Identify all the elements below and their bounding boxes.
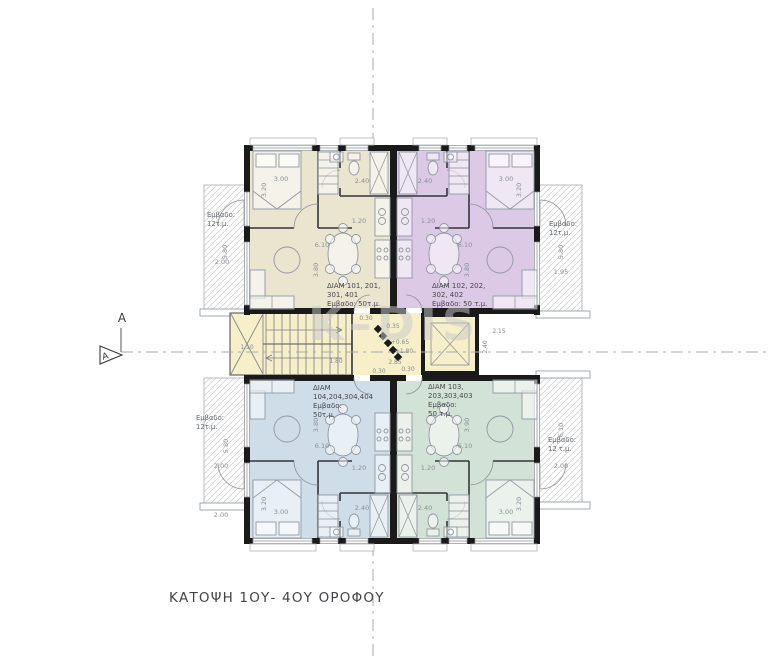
dim-1.95: 1.95 (554, 268, 568, 276)
railing-plate (200, 503, 247, 510)
dim-6.10: 6.10 (458, 241, 472, 249)
party-wall-top (390, 151, 397, 308)
dim-3.20: 3.20 (515, 183, 523, 197)
apt-102-label: 302, 402 (432, 291, 463, 299)
dim-3.00: 3.00 (274, 508, 288, 516)
dim-2.40: 2.40 (355, 177, 369, 185)
apt-103-label: ΔΙΑΜ 103, (428, 383, 464, 391)
drawing-title: ΚΑΤΟΨΗ 1ΟΥ- 4ΟΥ ΟΡΟΦΟΥ (169, 590, 385, 606)
dim-2.00: 2.00 (214, 462, 228, 470)
dim-3.20: 3.20 (515, 497, 523, 511)
dim-0.35: 0.35 (386, 323, 400, 330)
apt-102-area: Εμβαδο: 50 τ.μ. (432, 300, 487, 308)
dim-5.80: 5.80 (222, 439, 230, 453)
balcony-tl-area: Εμβαδο: (207, 211, 235, 219)
dim-6.10: 6.10 (458, 442, 472, 450)
dim-2.85: 2.85 (388, 359, 402, 366)
balcony-tr-area: 12τ.μ. (549, 229, 570, 237)
section-letter-top: A (118, 311, 127, 325)
level-+0.65: +0.65 (391, 339, 410, 346)
balcony-tr-area: Εμβαδο: (549, 220, 577, 228)
balcony-br-area: Εμβαδο: (548, 436, 576, 444)
apt-101-label: 301, 401 (327, 291, 358, 299)
dim-3.00: 3.00 (499, 175, 513, 183)
railing-plate (536, 371, 590, 378)
dim-3.90: 3.90 (463, 418, 471, 432)
dim-3.80: 3.80 (312, 263, 320, 277)
dim-1.20: 1.20 (352, 217, 366, 225)
dim-0.30: 0.30 (359, 315, 373, 322)
dim-3.80: 3.80 (312, 418, 320, 432)
apt-102-label: ΔΙΑΜ 102, 202, (432, 282, 485, 290)
floor-plan-canvas: A A K–DIS ΔΙΑΜ 101, 201, 301, 401 Εμβαδο… (0, 0, 768, 659)
dim-5.80: 5.80 (557, 245, 565, 259)
railing-plate (536, 502, 590, 509)
balcony-bl-area: Εμβαδο: (196, 414, 224, 422)
dim-3.20: 3.20 (260, 497, 268, 511)
dim-1.10: 1.10 (240, 344, 254, 351)
level-+1.80: +1.80 (395, 348, 414, 355)
dim-2.40: 2.40 (418, 504, 432, 512)
dim-3.20: 3.20 (260, 183, 268, 197)
dim-2.40: 2.40 (355, 504, 369, 512)
dim-2.15: 2.15 (492, 328, 506, 335)
apt-104-label: 104,204,304,404 (313, 393, 374, 401)
dim-1.20: 1.20 (352, 464, 366, 472)
dim-3.00: 3.00 (274, 175, 288, 183)
dim-6.10: 6.10 (315, 442, 329, 450)
apt-104-label: ΔΙΑΜ (313, 384, 331, 392)
dim-1.80: 1.80 (329, 358, 343, 365)
dim-2.00: 2.00 (214, 511, 228, 519)
dim-1.20: 1.20 (421, 464, 435, 472)
apt-104-area: Εμβαδο: (313, 402, 342, 410)
apt-101-label: ΔΙΑΜ 101, 201, (327, 282, 380, 290)
dim-1.20: 1.20 (421, 217, 435, 225)
apt-103-area: Εμβαδο: (428, 401, 457, 409)
railing-plate (536, 311, 590, 318)
dim-2.40: 2.40 (482, 340, 489, 354)
dim-2.40: 2.40 (418, 177, 432, 185)
balcony-br-area: 12 τ.μ. (548, 445, 572, 453)
party-wall-bottom (390, 381, 397, 538)
dim-3.00: 3.00 (499, 508, 513, 516)
dim-2.00: 2.00 (554, 462, 568, 470)
balcony-tl-area: 12τ.μ. (207, 220, 228, 228)
apt-101-area: Εμβαδο: 50τ.μ. (327, 300, 380, 308)
dim-0.30: 0.30 (401, 366, 415, 373)
dim-6.10: 6.10 (315, 241, 329, 249)
dim-3.80: 3.80 (463, 263, 471, 277)
floor-plan-svg: A A K–DIS ΔΙΑΜ 101, 201, 301, 401 Εμβαδο… (0, 0, 768, 659)
dim-0.30: 0.30 (372, 368, 386, 375)
apt-103-label: 203,303,403 (428, 392, 473, 400)
balcony-bl-area: 12τ.μ. (196, 423, 217, 431)
dim-2.00: 2.00 (215, 258, 229, 266)
apt-103-area: 50 τ.μ. (428, 410, 452, 418)
